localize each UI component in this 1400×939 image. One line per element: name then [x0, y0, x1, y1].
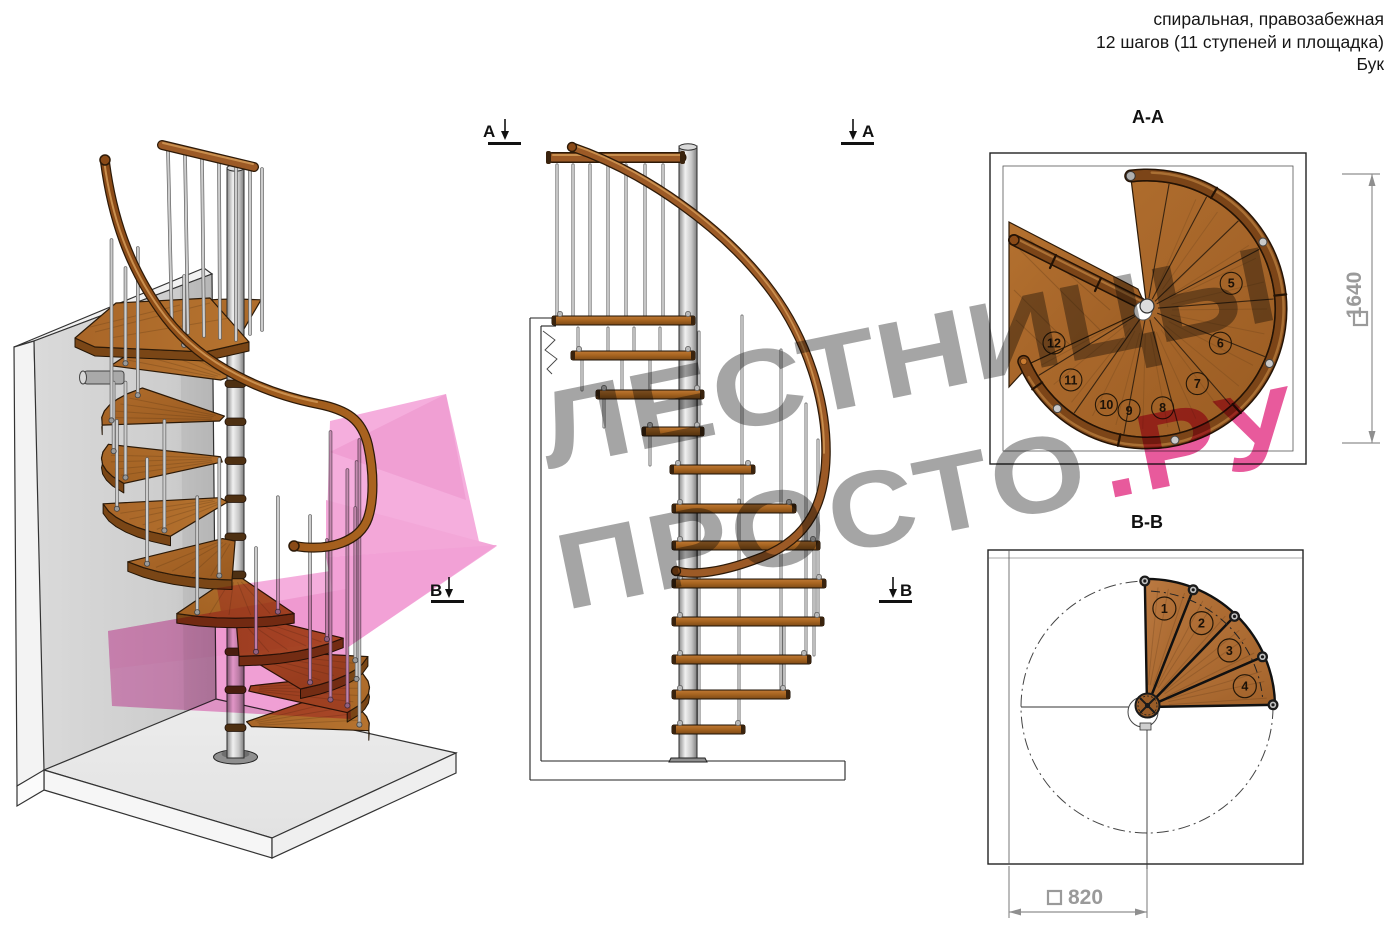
svg-text:1: 1: [1161, 602, 1168, 616]
svg-text:4: 4: [1241, 680, 1248, 694]
svg-text:А: А: [483, 122, 495, 141]
svg-text:А-А: А-А: [1132, 107, 1164, 127]
svg-text:В: В: [900, 581, 912, 600]
svg-text:А: А: [862, 122, 874, 141]
svg-text:820: 820: [1068, 886, 1103, 909]
svg-text:2: 2: [1198, 617, 1205, 631]
svg-text:3: 3: [1226, 644, 1233, 658]
svg-text:В: В: [430, 581, 442, 600]
